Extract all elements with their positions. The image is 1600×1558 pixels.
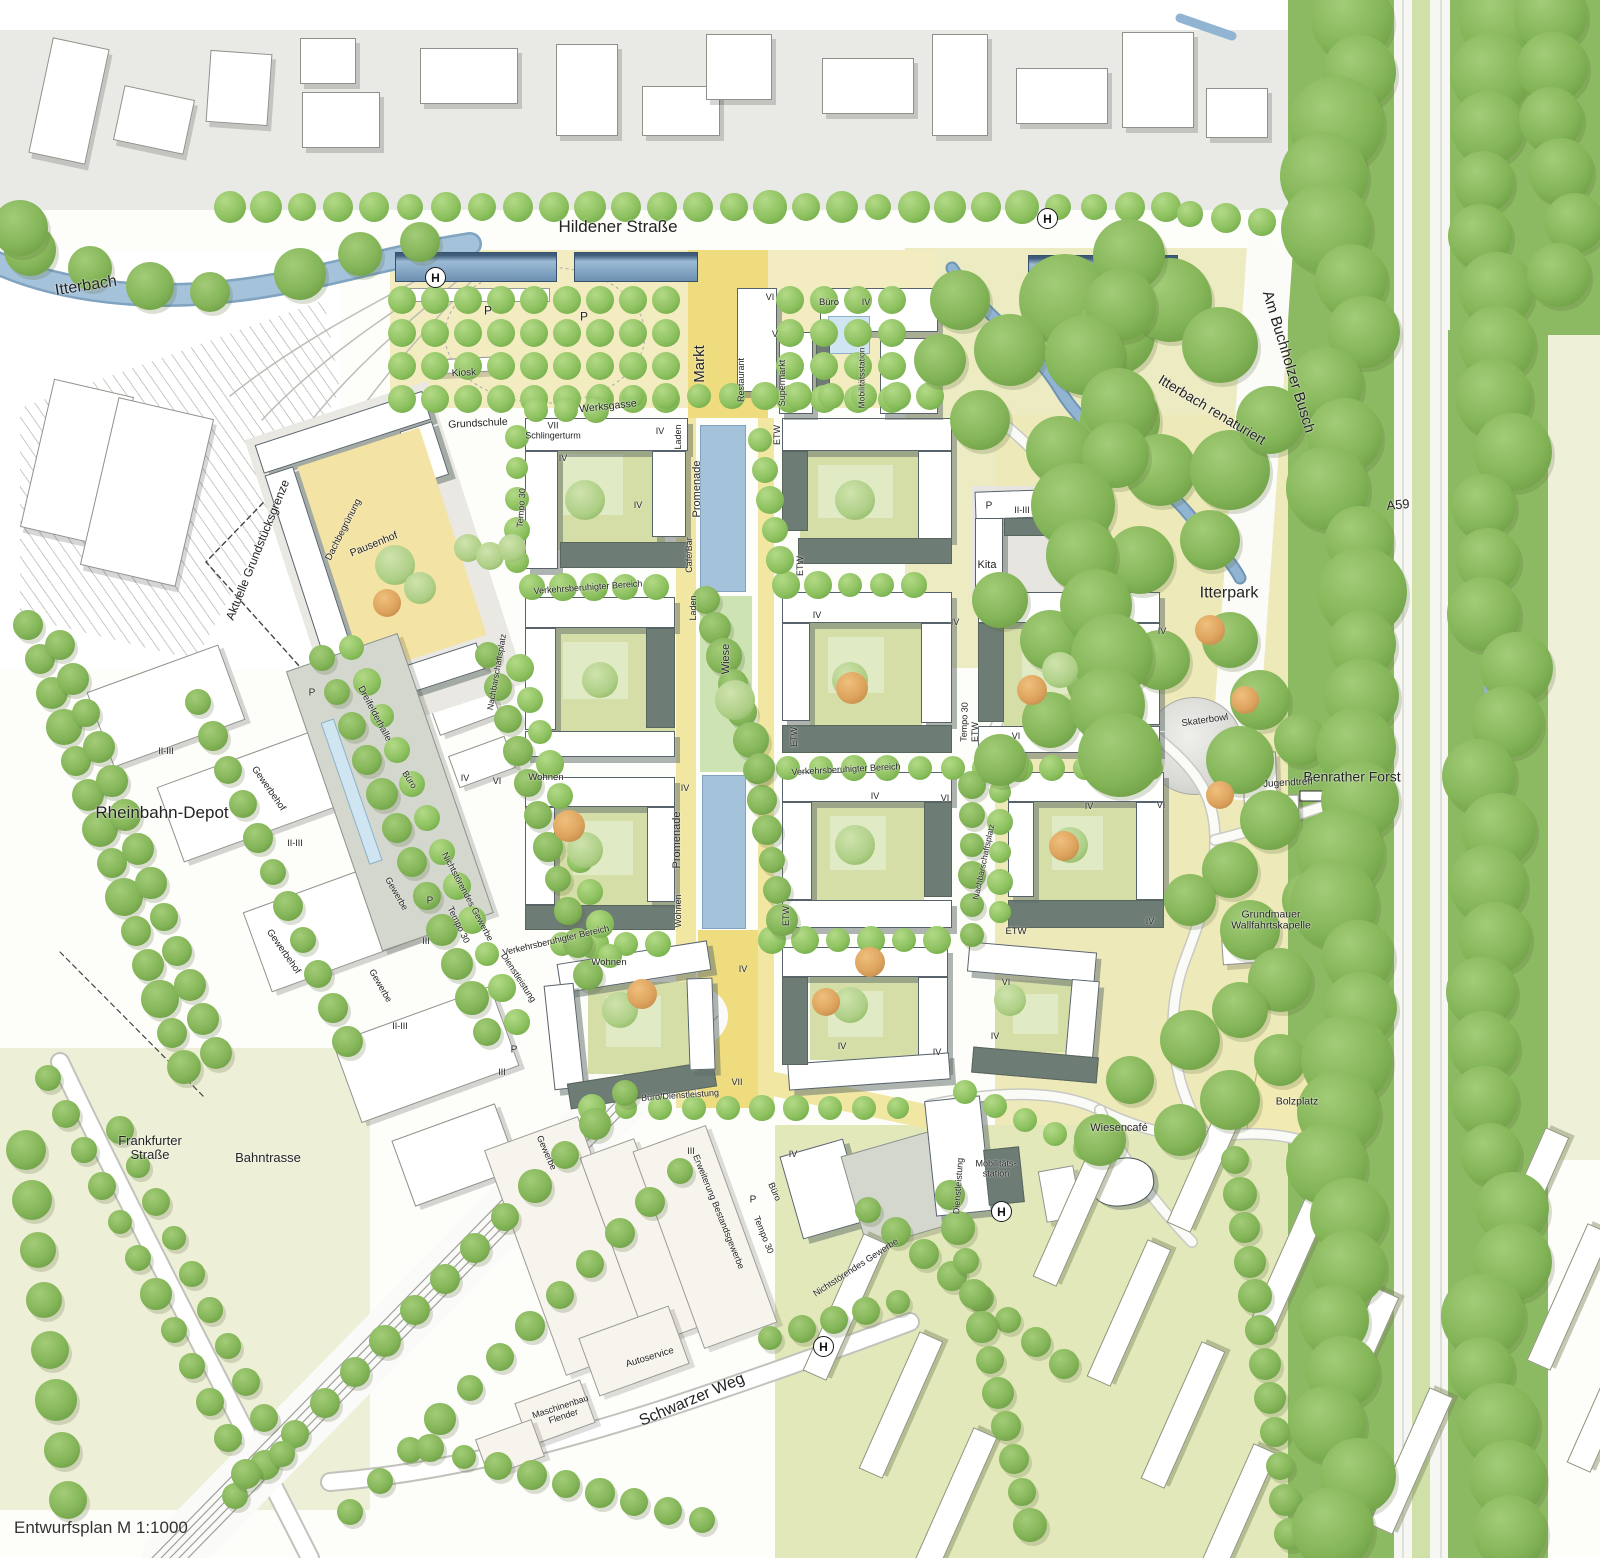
map-label: Wohnen — [528, 773, 563, 783]
map-label: ETW — [1005, 927, 1026, 937]
map-label: Wohnen — [591, 958, 626, 968]
building — [924, 802, 952, 897]
map-label: P — [309, 689, 316, 700]
building — [525, 451, 558, 569]
map-label: IV — [871, 792, 880, 802]
map-label: IV — [739, 965, 748, 975]
building — [1206, 88, 1268, 138]
map-label: Mobilitäts- station — [975, 1159, 1016, 1178]
map-label: IV — [461, 774, 470, 784]
map-label: ETW — [782, 906, 792, 926]
market-canopy — [574, 252, 698, 282]
map-label: Bolzplatz — [1276, 1096, 1319, 1107]
building — [556, 44, 618, 136]
map-label: P — [986, 502, 993, 513]
building — [782, 623, 810, 721]
map-label: IV — [862, 298, 871, 308]
map-label: Wohnen — [674, 894, 684, 927]
building — [822, 58, 914, 114]
building — [525, 597, 675, 628]
building — [300, 38, 356, 84]
map-label: II-III — [287, 839, 303, 849]
building — [1122, 32, 1194, 128]
map-label: V — [772, 330, 778, 340]
building — [782, 900, 952, 928]
tram-stop-icon: H — [1037, 208, 1058, 229]
map-label: II-III — [1014, 506, 1030, 516]
map-label: ETW — [790, 727, 800, 747]
map-label: Supermarkt — [778, 360, 788, 407]
map-label: IV — [681, 784, 690, 794]
map-label: A59 — [1386, 497, 1410, 513]
building — [420, 48, 518, 104]
map-label: Promenade — [692, 461, 704, 518]
map-label: VI — [1157, 801, 1166, 811]
map-label: Büro — [819, 298, 839, 308]
building — [706, 34, 772, 100]
map-label: Tempo 30 — [959, 702, 970, 742]
building — [782, 977, 808, 1065]
building — [1136, 802, 1164, 900]
map-label: IV — [634, 501, 643, 511]
tram-stop-icon: H — [813, 1336, 834, 1357]
map-label: ETW — [796, 556, 806, 576]
map-label: IV — [1158, 627, 1167, 637]
scale-note: Entwurfsplan M 1:1000 — [14, 1518, 188, 1538]
map-label: Kita — [978, 560, 997, 572]
map-label: IV — [559, 454, 568, 464]
map-label: III — [687, 1147, 695, 1157]
map-label: Café/Bar — [685, 537, 695, 573]
map-label: Promenade — [672, 812, 684, 869]
map-label: IV — [789, 1150, 798, 1160]
tram-stop-icon: H — [425, 267, 446, 288]
building — [652, 451, 686, 537]
building — [978, 623, 1004, 722]
building — [921, 623, 952, 723]
map-label: VI — [1012, 732, 1021, 742]
map-label: Bahntrasse — [235, 1151, 301, 1165]
map-label: IV — [656, 427, 665, 437]
map-label: P — [484, 305, 492, 318]
map-label: Markt — [692, 345, 708, 383]
building — [1008, 900, 1164, 928]
map-label: Frankfurter Straße — [118, 1134, 182, 1162]
map-label: VI — [941, 794, 950, 804]
map-label: IV — [1085, 802, 1094, 812]
map-label: P — [750, 1196, 757, 1207]
building — [525, 628, 556, 730]
map-label: Wiesencafé — [1090, 1123, 1147, 1135]
building — [932, 34, 988, 136]
map-label: VII — [731, 1078, 742, 1088]
masterplan-map: Hildener StraßeItterbachRheinbahn-DepotA… — [0, 0, 1600, 1558]
map-label: VI — [493, 777, 502, 787]
building — [686, 978, 715, 1071]
tram-stop-icon: H — [991, 1201, 1012, 1222]
map-label: IV — [951, 618, 960, 628]
map-label: Benrather Forst — [1303, 769, 1400, 784]
map-label: Hildener Straße — [558, 218, 677, 236]
map-label: P — [511, 1046, 518, 1057]
building — [782, 451, 808, 531]
building — [206, 50, 273, 126]
map-label: III — [498, 1068, 506, 1078]
map-label: ETW — [773, 425, 783, 445]
map-label: ETW — [971, 722, 981, 742]
map-label: II-III — [158, 747, 174, 757]
map-label: Rheinbahn-Depot — [95, 804, 228, 822]
map-label: Laden — [689, 595, 699, 620]
map-label: VII Schlingerturm — [525, 421, 581, 440]
map-label: Mobilitätsstation — [857, 348, 866, 409]
map-label: VI — [766, 293, 775, 303]
map-label: P — [580, 311, 588, 324]
map-label: IV — [991, 1032, 1000, 1042]
building — [782, 418, 952, 451]
map-label: Laden — [674, 424, 684, 449]
map-label: Grundmauer Wallfahrtskapelle — [1231, 910, 1311, 933]
map-label: P — [427, 897, 434, 908]
building — [918, 451, 952, 539]
map-label: IV — [813, 611, 822, 621]
building — [560, 542, 688, 568]
map-label: Wiese — [721, 644, 733, 675]
map-label: Restaurant — [737, 358, 747, 402]
map-label: VI — [1002, 978, 1011, 988]
map-label: III — [422, 937, 430, 947]
map-label: IV — [838, 1042, 847, 1052]
map-label: Itterpark — [1200, 584, 1259, 601]
map-label: Kiosk — [452, 368, 477, 380]
building — [798, 538, 952, 564]
building — [782, 592, 952, 623]
building — [646, 628, 675, 728]
building — [1016, 68, 1108, 124]
map-label: IV — [1146, 917, 1155, 927]
building — [302, 92, 380, 148]
building — [782, 725, 952, 753]
map-label: II-III — [392, 1022, 408, 1032]
map-label: IV — [933, 1048, 942, 1058]
